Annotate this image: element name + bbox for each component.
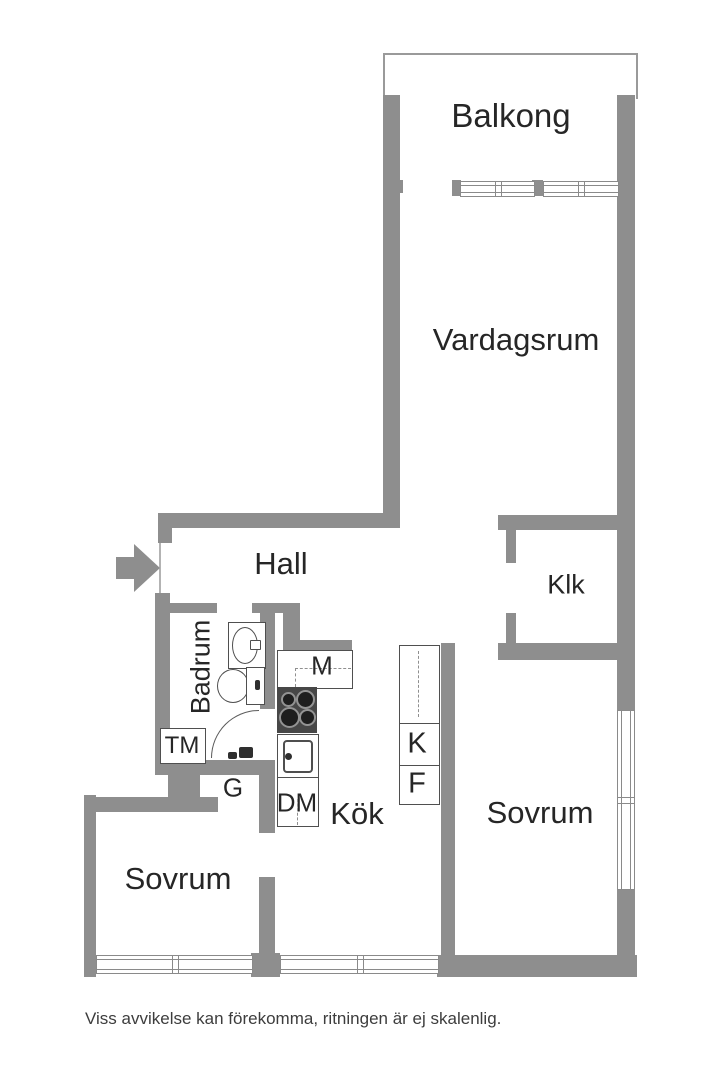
entrance-arrow-icon — [116, 557, 135, 579]
stove-icon — [277, 687, 317, 733]
wall-wardrobe-chunk — [168, 775, 200, 797]
label-cabinet-m: M — [311, 651, 333, 682]
burner-icon — [299, 709, 316, 726]
burner-icon — [279, 707, 300, 728]
entrance-arrow-head-icon — [134, 544, 160, 592]
burner-icon — [281, 692, 296, 707]
window-bedroom-left — [96, 955, 253, 974]
cabinet-dash — [295, 668, 296, 687]
room-label-hall: Hall — [254, 546, 307, 582]
wall-hall-top-endcap — [158, 513, 172, 543]
wall-klk-bottom — [498, 643, 617, 660]
cabinet-dash — [418, 651, 419, 717]
label-freezer: F — [408, 768, 426, 801]
wall-bottom-right — [437, 955, 637, 977]
toilet-button-icon — [255, 680, 260, 690]
window-balcony-2 — [543, 181, 619, 197]
window-mullion — [172, 956, 179, 973]
shower-mixer-icon — [239, 747, 253, 758]
label-fridge: K — [407, 728, 426, 761]
window-kitchen — [280, 955, 439, 974]
toilet-bowl-icon — [217, 669, 249, 703]
window-mullion — [578, 182, 585, 196]
wall-kitchen-west-b — [259, 877, 275, 955]
wall-klk-top — [498, 515, 617, 530]
window-bedroom-right — [617, 710, 635, 890]
wall-klk-stub-upper — [506, 530, 516, 563]
room-label-klk: Klk — [547, 570, 585, 601]
wall-kitchen-bedroom-divider — [441, 643, 455, 955]
window-balcony-1 — [460, 181, 535, 197]
wall-east-low — [617, 888, 635, 977]
wall-kitchen-west-a — [259, 775, 275, 833]
window-mullion — [495, 182, 502, 196]
wall-livingroom-west — [383, 193, 400, 528]
wall-window-pier-bottom — [251, 953, 280, 977]
wall-kitchen-north-horiz — [283, 640, 352, 650]
wall-bedroom-left-top — [84, 797, 218, 812]
kitchen-faucet-icon — [285, 753, 292, 760]
room-label-living-room: Vardagsrum — [433, 322, 600, 358]
wall-east-upper — [617, 196, 635, 515]
cabinet-dash — [297, 799, 298, 825]
floor-plan: Balkong Vardagsrum Hall Klk Badrum Kök S… — [0, 0, 720, 1080]
balcony-railing — [383, 53, 638, 99]
window-mullion — [357, 956, 364, 973]
sink-tap-icon — [250, 640, 261, 650]
wall-exterior-left — [84, 795, 96, 977]
wall-bathroom-top-1 — [158, 603, 217, 613]
room-label-bathroom: Badrum — [186, 620, 217, 715]
wall-east-mid — [617, 515, 635, 710]
room-label-bedroom-right: Sovrum — [487, 795, 594, 831]
label-wardrobe: G — [223, 773, 243, 804]
wall-hall-top — [158, 513, 400, 528]
wall-corner-bottom-left — [84, 953, 96, 977]
wall-klk-stub-lower — [506, 613, 516, 643]
wall-balcony-right — [617, 95, 635, 196]
label-washing-machine: TM — [165, 732, 200, 760]
room-label-bedroom-left: Sovrum — [125, 861, 232, 897]
shower-mixer-icon — [228, 752, 237, 759]
wall-balcony-door-notch — [395, 180, 403, 193]
room-label-balcony: Balkong — [451, 97, 570, 135]
tall-cabinet — [399, 645, 440, 725]
disclaimer-text: Viss avvikelse kan förekomma, ritningen … — [85, 1009, 501, 1029]
window-mullion — [618, 797, 634, 804]
burner-icon — [296, 690, 315, 709]
room-label-kitchen: Kök — [330, 796, 383, 832]
